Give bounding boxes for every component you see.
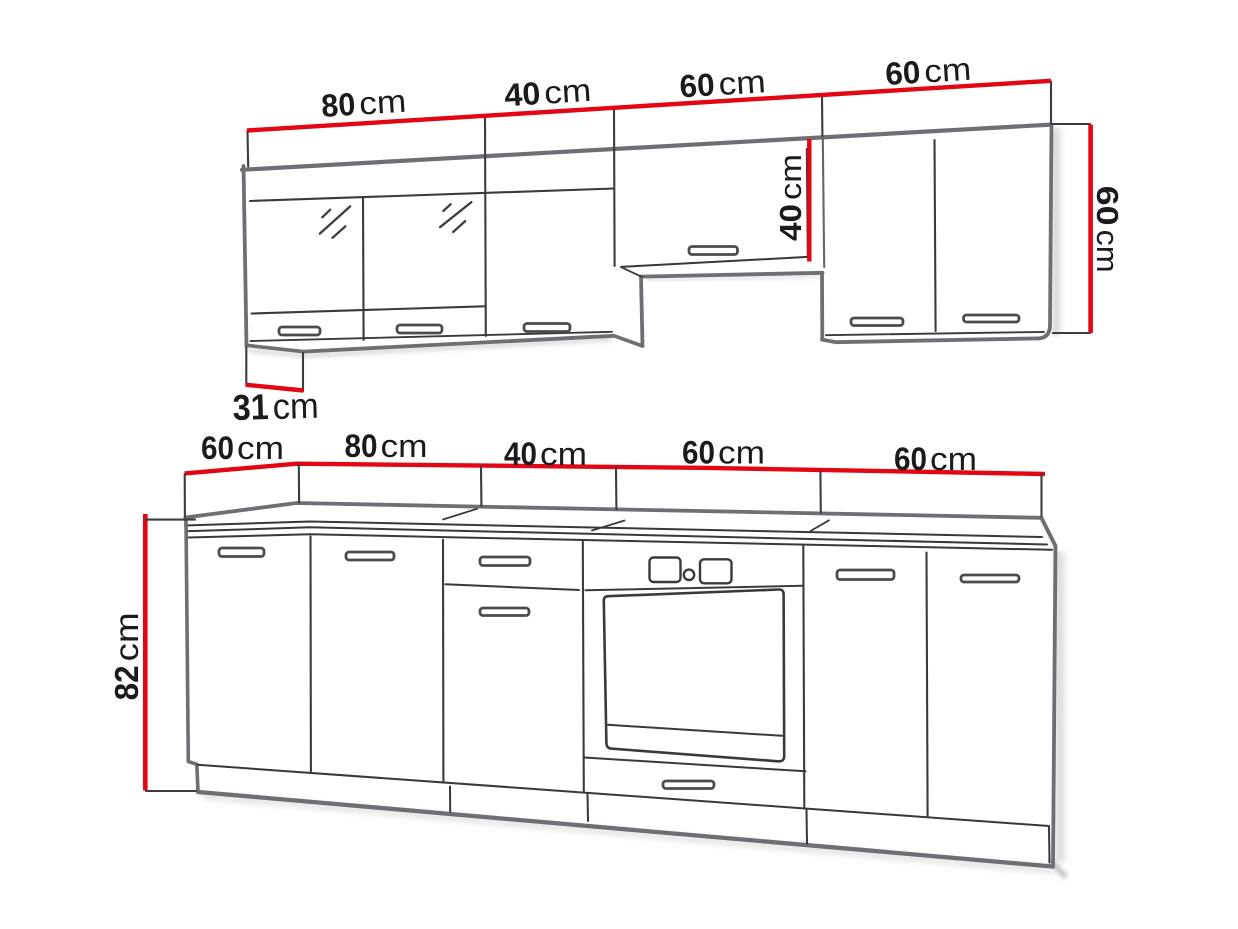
svg-text:cm: cm [358,83,407,122]
svg-text:cm: cm [773,154,808,200]
svg-text:60: 60 [201,430,234,466]
svg-text:31: 31 [232,386,269,428]
svg-text:80: 80 [320,86,356,124]
svg-text:40: 40 [773,204,808,241]
svg-text:cm: cm [543,72,592,111]
svg-text:cm: cm [272,385,319,427]
svg-text:40: 40 [504,436,537,472]
svg-text:cm: cm [718,435,765,471]
svg-text:cm: cm [108,612,145,661]
svg-text:82: 82 [108,665,145,700]
svg-text:60: 60 [1090,186,1125,226]
svg-text:80: 80 [345,428,378,464]
svg-text:cm: cm [923,51,972,90]
svg-text:60: 60 [678,66,715,104]
svg-text:cm: cm [930,441,977,477]
svg-text:60: 60 [884,54,921,92]
svg-text:cm: cm [381,428,428,464]
svg-text:cm: cm [717,63,766,102]
svg-text:60: 60 [894,441,927,477]
svg-text:60: 60 [682,435,715,471]
svg-text:40: 40 [503,75,541,113]
svg-text:cm: cm [237,430,284,466]
svg-text:cm: cm [1090,230,1125,273]
svg-text:cm: cm [540,436,587,472]
